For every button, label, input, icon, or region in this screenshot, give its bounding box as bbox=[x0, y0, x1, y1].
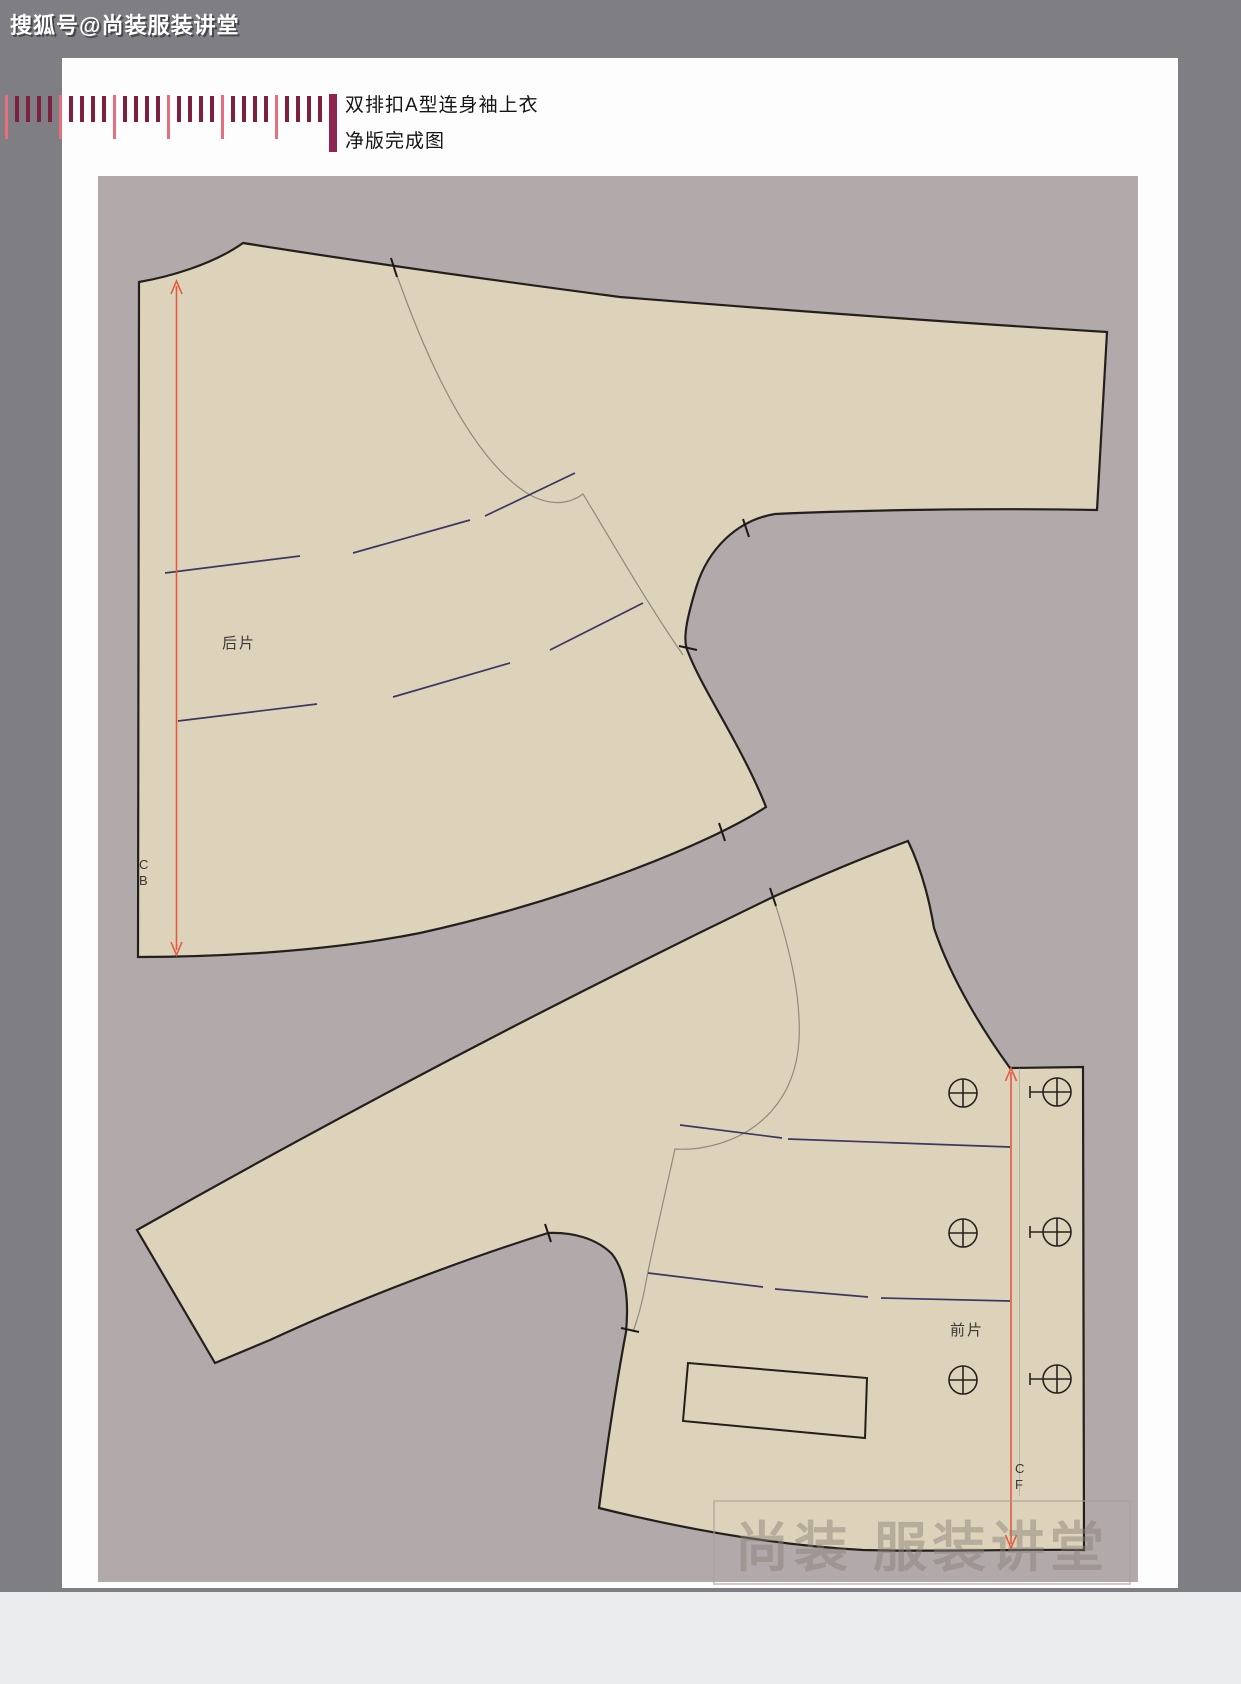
watermark-box: 尚装 服装讲堂 bbox=[713, 1500, 1131, 1585]
ruler-tick bbox=[91, 96, 95, 122]
ruler-tick bbox=[221, 95, 224, 139]
ruler-tick bbox=[210, 96, 214, 122]
ruler-tick bbox=[264, 96, 268, 122]
ruler-tick bbox=[318, 96, 322, 122]
ruler-tick bbox=[113, 95, 116, 139]
ruler-tick bbox=[167, 95, 170, 139]
ruler-tick bbox=[296, 96, 300, 122]
viewer-bottom-strip bbox=[0, 1592, 1241, 1684]
screenshot-root: 双排扣A型连身袖上衣 净版完成图 bbox=[0, 0, 1241, 1684]
ruler-tick bbox=[26, 96, 30, 122]
button-mark bbox=[949, 1366, 977, 1394]
ruler-tick bbox=[156, 96, 160, 122]
watermark-text: 尚装 服装讲堂 bbox=[735, 1503, 1109, 1582]
header-title-block: 双排扣A型连身袖上衣 净版完成图 bbox=[345, 90, 539, 153]
ruler-tick bbox=[231, 96, 235, 122]
page-title: 双排扣A型连身袖上衣 bbox=[345, 90, 539, 117]
ruler-tick bbox=[134, 96, 138, 122]
back-piece-label: 后片 bbox=[222, 635, 256, 652]
ruler-tick bbox=[275, 95, 278, 139]
cb-label-bottom: B bbox=[139, 873, 148, 888]
ruler-tick bbox=[59, 95, 62, 139]
ruler-tick bbox=[307, 96, 311, 122]
ruler-tick bbox=[102, 96, 106, 122]
front-piece-label: 前片 bbox=[950, 1322, 984, 1339]
ruler-tick bbox=[15, 96, 19, 122]
button-mark bbox=[949, 1219, 977, 1247]
ruler-tick bbox=[199, 96, 203, 122]
ruler-tick bbox=[242, 96, 246, 122]
ruler-tick bbox=[123, 96, 127, 122]
pattern-diagram: C B 后片 bbox=[98, 176, 1138, 1582]
cf-label-bottom: F bbox=[1015, 1477, 1023, 1492]
ruler-tick bbox=[329, 94, 337, 152]
button-mark bbox=[949, 1079, 977, 1107]
account-overlay-text: 搜狐号@尚装服装讲堂 bbox=[10, 8, 239, 40]
ruler-tick bbox=[69, 96, 73, 122]
ruler-tick bbox=[177, 96, 181, 122]
cb-label-top: C bbox=[139, 857, 148, 872]
cf-label-top: C bbox=[1015, 1461, 1024, 1476]
ruler-tick bbox=[80, 96, 84, 122]
page-subtitle: 净版完成图 bbox=[345, 126, 539, 153]
ruler-tick bbox=[145, 96, 149, 122]
ruler-tick bbox=[253, 96, 257, 122]
ruler-tick bbox=[48, 96, 52, 122]
back-piece-outline bbox=[138, 243, 1107, 957]
ruler-tick bbox=[285, 96, 289, 122]
ruler-tick bbox=[188, 96, 192, 122]
ruler-tick bbox=[5, 95, 8, 139]
ruler-tick bbox=[37, 96, 41, 122]
